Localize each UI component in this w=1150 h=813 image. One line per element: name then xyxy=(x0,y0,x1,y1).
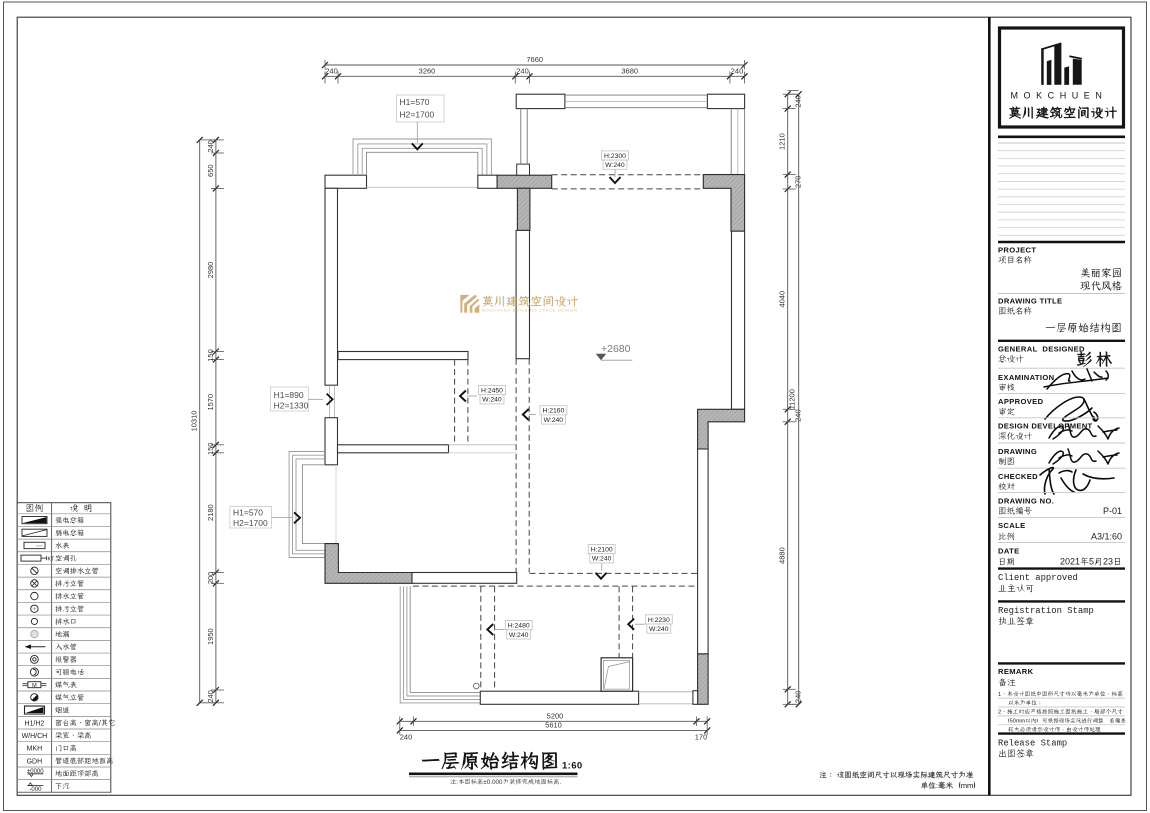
svg-text:3680: 3680 xyxy=(621,67,638,76)
svg-text:240: 240 xyxy=(794,95,803,108)
svg-text:mm: mm xyxy=(961,781,974,790)
svg-text:.: . xyxy=(559,779,561,786)
svg-text:1570: 1570 xyxy=(206,394,215,411)
svg-text:DRAWING NO.: DRAWING NO. xyxy=(998,496,1054,505)
svg-text:H1=570: H1=570 xyxy=(400,97,430,107)
svg-text:150: 150 xyxy=(206,443,215,456)
svg-text:4880: 4880 xyxy=(778,547,787,564)
svg-text:7660: 7660 xyxy=(526,55,543,64)
svg-text:H:2450: H:2450 xyxy=(481,388,503,395)
svg-text:240: 240 xyxy=(794,409,803,422)
svg-text:170: 170 xyxy=(695,733,708,742)
svg-text:EXAMINATION: EXAMINATION xyxy=(998,373,1054,382)
svg-text:10310: 10310 xyxy=(190,411,199,432)
svg-text:1950: 1950 xyxy=(206,628,215,645)
svg-text:A3/1:60: A3/1:60 xyxy=(1091,531,1122,541)
svg-text:Registration Stamp: Registration Stamp xyxy=(998,606,1094,616)
svg-text:1: 1 xyxy=(998,692,1001,698)
svg-text:2180: 2180 xyxy=(206,504,215,521)
svg-text:11200: 11200 xyxy=(788,389,797,409)
svg-text:APPROVED: APPROVED xyxy=(998,397,1044,406)
svg-text:H1=570: H1=570 xyxy=(233,507,263,517)
svg-text:M: M xyxy=(32,683,37,689)
svg-text:H1/H2: H1/H2 xyxy=(24,720,44,727)
svg-text:1210: 1210 xyxy=(778,133,787,150)
svg-text:23: 23 xyxy=(1103,557,1113,567)
svg-text:W:240: W:240 xyxy=(649,626,669,633)
svg-text:SCALE: SCALE xyxy=(998,521,1026,530)
svg-text:-000: -000 xyxy=(29,787,42,793)
svg-text:5610: 5610 xyxy=(545,721,562,730)
svg-text:H2=1700: H2=1700 xyxy=(233,518,268,528)
svg-text:H:2100: H:2100 xyxy=(591,547,613,554)
svg-text::: : xyxy=(936,781,938,790)
svg-text:150: 150 xyxy=(206,349,215,362)
svg-text:H:2480: H:2480 xyxy=(508,623,530,630)
svg-text:W:240: W:240 xyxy=(592,556,612,563)
svg-text:MOKCHUEN BUILDING SPACE DESIGN: MOKCHUEN BUILDING SPACE DESIGN xyxy=(482,308,578,313)
svg-text:GENERAL DESIGNED: GENERAL DESIGNED xyxy=(998,345,1085,354)
svg-text:240: 240 xyxy=(206,690,215,703)
svg-text:W:240: W:240 xyxy=(482,397,502,404)
svg-text:240: 240 xyxy=(731,67,744,76)
svg-text:Client approved: Client approved xyxy=(998,573,1078,583)
svg-text:±0.000: ±0.000 xyxy=(483,779,503,786)
svg-text:240: 240 xyxy=(400,733,413,742)
svg-text:H:2160: H:2160 xyxy=(542,408,564,415)
svg-text:GDH: GDH xyxy=(27,758,43,765)
svg-text:DRAWING: DRAWING xyxy=(998,447,1037,456)
svg-text:Release Stamp: Release Stamp xyxy=(998,738,1067,748)
svg-text::: : xyxy=(456,779,458,786)
svg-text:240: 240 xyxy=(516,67,529,76)
svg-text:270: 270 xyxy=(794,176,803,189)
svg-text:W:240: W:240 xyxy=(605,162,625,169)
svg-text:PROJECT: PROJECT xyxy=(998,245,1036,254)
svg-text:DRAWING TITLE: DRAWING TITLE xyxy=(998,297,1062,306)
svg-text:2021: 2021 xyxy=(1060,557,1080,567)
svg-text:2: 2 xyxy=(998,710,1001,716)
svg-text:DESIGN DEVELOPMENT: DESIGN DEVELOPMENT xyxy=(998,422,1092,431)
svg-text:50mm: 50mm xyxy=(1010,719,1026,725)
svg-text:2980: 2980 xyxy=(206,262,215,279)
svg-text:W:240: W:240 xyxy=(509,632,529,639)
svg-text:H2=1700: H2=1700 xyxy=(400,109,435,119)
svg-text:5200: 5200 xyxy=(547,712,564,721)
svg-text:CHECKED: CHECKED xyxy=(998,472,1038,481)
svg-text:200: 200 xyxy=(206,572,215,585)
svg-text:240: 240 xyxy=(206,140,215,153)
svg-text:3260: 3260 xyxy=(419,67,436,76)
svg-text:H1=890: H1=890 xyxy=(274,390,304,400)
svg-text:H:2300: H:2300 xyxy=(604,153,626,160)
svg-text:W:240: W:240 xyxy=(544,417,564,424)
svg-text:5: 5 xyxy=(1089,557,1094,567)
svg-text:1:60: 1:60 xyxy=(562,761,583,772)
svg-text:W/H/CH: W/H/CH xyxy=(22,733,48,740)
svg-text:H2=1330: H2=1330 xyxy=(274,401,309,411)
svg-text:4040: 4040 xyxy=(778,291,787,308)
svg-text:650: 650 xyxy=(206,164,215,177)
svg-text:DATE: DATE xyxy=(998,546,1020,555)
svg-text:MKH: MKH xyxy=(27,746,43,753)
svg-text:KT: KT xyxy=(48,556,55,562)
svg-text:MOKCHUEN: MOKCHUEN xyxy=(1011,91,1108,101)
svg-text:+2680: +2680 xyxy=(601,343,631,355)
svg-text:P-01: P-01 xyxy=(1103,506,1122,516)
svg-text:H:2230: H:2230 xyxy=(648,617,670,624)
svg-text:REMARK: REMARK xyxy=(998,667,1034,676)
svg-text:240: 240 xyxy=(325,67,338,76)
